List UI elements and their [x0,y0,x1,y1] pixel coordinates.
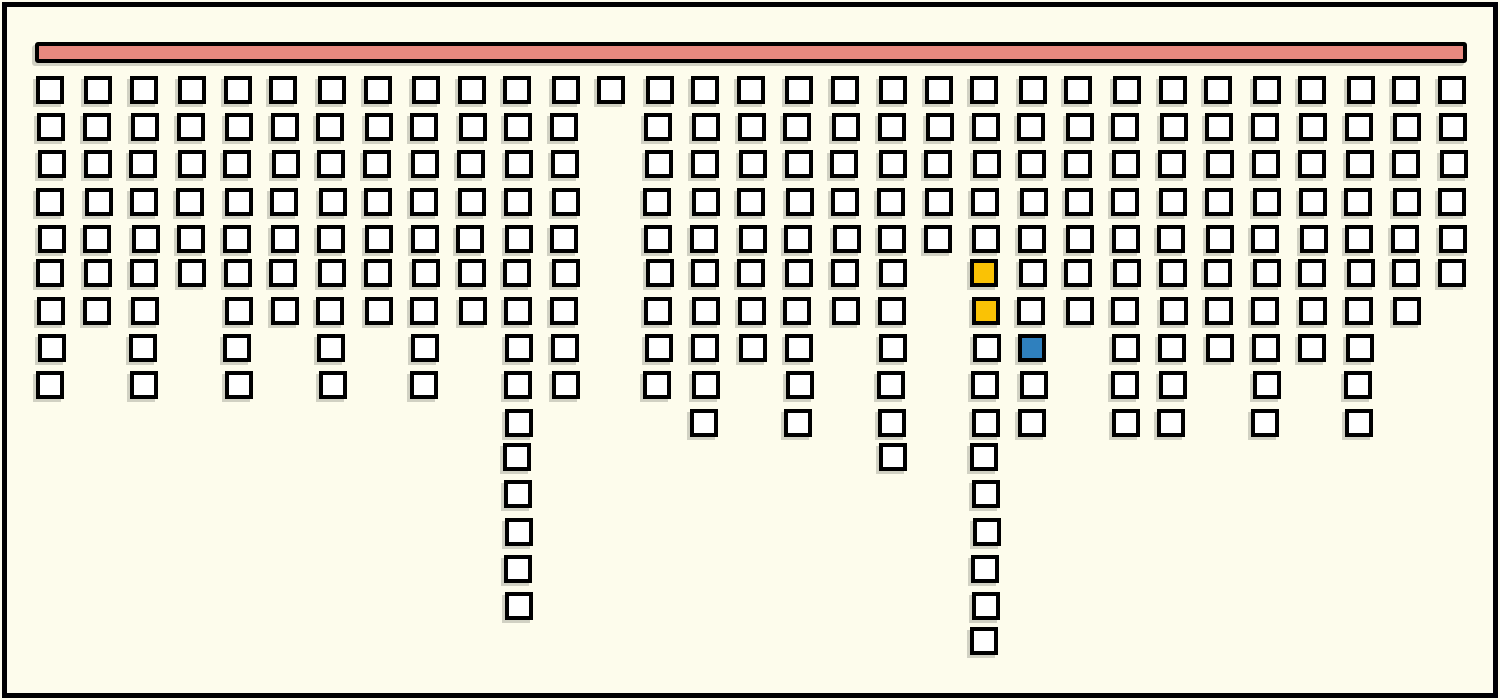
cell-square [1393,188,1421,216]
cell-square [1159,76,1187,104]
cell-square [364,259,392,287]
cell-square [1345,225,1373,253]
cell-square [1111,188,1139,216]
cell-square [971,371,999,399]
cell-square [269,76,297,104]
cell-square [830,150,858,178]
cell-square [973,334,1001,362]
cell-square [178,150,206,178]
cell-square [84,259,112,287]
cell-square [223,334,251,362]
cell-square [785,150,813,178]
cell-square [552,371,580,399]
cell-square [178,76,206,104]
cell-square [176,188,204,216]
cell-square [692,297,720,325]
cell-square [785,334,813,362]
cell-square [504,297,532,325]
cell-square [83,113,111,141]
cell-square [364,76,392,104]
cell-square [271,225,299,253]
cell-square [1206,225,1234,253]
cell-square [879,443,907,471]
cell-square [130,76,158,104]
cell-square [36,188,64,216]
cell-square [319,188,347,216]
cell-square [972,592,1000,620]
cell-square [644,225,672,253]
cell-square [552,76,580,104]
cell-square [1392,150,1420,178]
cell-square [690,225,718,253]
cell-square [783,297,811,325]
cell-square [363,150,391,178]
cell-square [37,113,65,141]
cell-square [1252,150,1280,178]
cell-square [691,76,719,104]
cell-square [645,150,673,178]
cell-square [691,150,719,178]
cell-square [411,334,439,362]
cell-square [1112,409,1140,437]
cell-square [1300,225,1328,253]
cell-square [224,76,252,104]
cell-square [317,150,345,178]
cell-square [691,259,719,287]
cell-square [505,334,533,362]
cell-square [973,150,1001,178]
cell-square [505,225,533,253]
cell-square [1205,113,1233,141]
cell-square [317,225,345,253]
cell-square [1298,76,1326,104]
cell-square [178,259,206,287]
cell-square [1205,188,1233,216]
cell-square [459,297,487,325]
cell-square [36,371,64,399]
cell-square [1066,113,1094,141]
cell-square [646,259,674,287]
cell-square [83,297,111,325]
cell-square [38,225,66,253]
cell-square [223,150,251,178]
cell-square [1112,225,1140,253]
cell-square [597,76,625,104]
cell-square [1298,334,1326,362]
cell-square [504,188,532,216]
cell-square [1439,113,1467,141]
cell-square [1112,150,1140,178]
cell-square [879,334,907,362]
cell-square [1392,259,1420,287]
cell-square [270,188,298,216]
cell-square [550,113,578,141]
cell-square [737,76,765,104]
cell-square-highlighted [970,259,998,287]
cell-square [503,443,531,471]
cell-square [925,76,953,104]
cell-square [1347,259,1375,287]
cell-square [504,480,532,508]
cell-square [551,150,579,178]
cell-square [924,225,952,253]
cell-square [1158,334,1186,362]
cell-square [1020,371,1048,399]
cell-square [692,113,720,141]
cell-square [1020,188,1048,216]
cell-square [551,334,579,362]
cell-square [504,555,532,583]
cell-square [1160,113,1188,141]
cell-square [316,297,344,325]
cell-square [739,334,767,362]
cell-square [1160,297,1188,325]
cell-square [319,371,347,399]
cell-square [831,76,859,104]
cell-square [784,225,812,253]
cell-square [1204,259,1232,287]
cell-square [877,188,905,216]
cell-square [972,409,1000,437]
cell-square [925,188,953,216]
cell-square [1299,188,1327,216]
cell-square [1438,259,1466,287]
cell-square [365,225,393,253]
cell-square [410,113,438,141]
cell-square [131,297,159,325]
cell-square [225,371,253,399]
cell-square [879,150,907,178]
cell-square [1299,113,1327,141]
cell-square-highlighted [1018,334,1046,362]
cell-square [1253,188,1281,216]
cell-square [130,259,158,287]
cell-square [36,76,64,104]
cell-square [38,334,66,362]
cell-square [456,225,484,253]
cell-square [83,225,111,253]
cell-square [317,334,345,362]
cell-square [1113,76,1141,104]
cell-square [1018,225,1046,253]
cell-square [971,188,999,216]
cell-square [879,259,907,287]
cell-square [271,113,299,141]
cell-square [832,113,860,141]
cell-square [552,188,580,216]
cell-square [645,334,673,362]
cell-square [1017,297,1045,325]
cell-square [1204,76,1232,104]
cell-square [972,113,1000,141]
cell-square [833,225,861,253]
cell-square [272,150,300,178]
cell-square [132,225,160,253]
cell-square [1393,113,1421,141]
cell-square [1346,334,1374,362]
top-bar [35,42,1467,63]
cell-square [318,259,346,287]
cell-square [783,113,811,141]
cell-square [410,188,438,216]
cell-square [459,113,487,141]
cell-square [38,150,66,178]
cell-square [1018,409,1046,437]
cell-square [1391,225,1419,253]
cell-square [1066,225,1094,253]
cell-square [84,76,112,104]
cell-square [411,150,439,178]
cell-square [1299,297,1327,325]
cell-square [878,113,906,141]
cell-square [643,371,671,399]
cell-square [550,297,578,325]
cell-square [1064,76,1092,104]
cell-square [1253,76,1281,104]
cell-square [410,297,438,325]
cell-square [271,297,299,325]
cell-square [1438,76,1466,104]
cell-square [1206,334,1234,362]
figure-canvas [0,0,1500,700]
cell-square [690,409,718,437]
cell-square [646,76,674,104]
cell-square [1111,113,1139,141]
cell-square [1018,150,1046,178]
cell-square [1064,150,1092,178]
cell-square [1253,371,1281,399]
cell-square [318,76,346,104]
cell-square [692,371,720,399]
cell-square [1111,297,1139,325]
cell-square [316,113,344,141]
cell-square [129,150,157,178]
cell-square [1113,259,1141,287]
cell-square [1157,409,1185,437]
cell-square [784,409,812,437]
cell-square [1066,297,1094,325]
cell-square [458,76,486,104]
cell-square [130,371,158,399]
cell-square [1392,76,1420,104]
cell-square [970,76,998,104]
cell-square [1438,188,1466,216]
cell-square [1251,297,1279,325]
cell-square [737,188,765,216]
cell-square [878,409,906,437]
cell-square [505,409,533,437]
cell-square [1205,297,1233,325]
cell-square [738,113,766,141]
cell-square [457,150,485,178]
cell-square [737,259,765,287]
cell-square [129,334,157,362]
cell-square [1344,188,1372,216]
cell-square [644,113,672,141]
cell-square [832,297,860,325]
cell-square [269,259,297,287]
cell-square [1017,113,1045,141]
cell-square [1019,259,1047,287]
cell-square [1112,334,1140,362]
cell-square [1251,409,1279,437]
cell-square [412,259,440,287]
cell-square [878,297,906,325]
cell-square [785,259,813,287]
cell-square [738,297,766,325]
cell-square [458,259,486,287]
cell-square [1159,371,1187,399]
cell-square [831,259,859,287]
cell-square [364,188,392,216]
cell-square [177,225,205,253]
cell-square [1393,297,1421,325]
cell-square [1346,150,1374,178]
cell-square [1439,225,1467,253]
cell-square [643,188,671,216]
cell-square [505,592,533,620]
cell-square [130,188,158,216]
cell-square [504,371,532,399]
cell-square [1111,371,1139,399]
cell-square [877,371,905,399]
cell-square [224,259,252,287]
cell-square [970,627,998,655]
cell-square [365,113,393,141]
cell-square [365,297,393,325]
cell-square [1159,259,1187,287]
cell-square [177,113,205,141]
cell-square [550,225,578,253]
cell-square [786,371,814,399]
cell-square [85,188,113,216]
cell-square-highlighted [972,297,1000,325]
cell-square [973,518,1001,546]
cell-square [786,188,814,216]
cell-square [505,150,533,178]
cell-square [831,188,859,216]
cell-square [1159,188,1187,216]
cell-square [692,188,720,216]
cell-square [225,113,253,141]
cell-square [503,259,531,287]
cell-square [504,113,532,141]
cell-square [785,76,813,104]
cell-square [1251,225,1279,253]
cell-square [1344,371,1372,399]
cell-square [1157,225,1185,253]
cell-square [1206,150,1234,178]
cell-square [223,225,251,253]
cell-square [926,113,954,141]
cell-square [84,150,112,178]
cell-square [739,225,767,253]
cell-square [1440,150,1468,178]
cell-square [691,334,719,362]
cell-square [1298,259,1326,287]
cell-square [1252,334,1280,362]
cell-square [972,225,1000,253]
cell-square [37,297,65,325]
cell-square [503,76,531,104]
cell-square [1345,409,1373,437]
cell-square [879,76,907,104]
cell-square [972,480,1000,508]
cell-square [225,188,253,216]
cell-square [924,150,952,178]
cell-square [552,259,580,287]
cell-square [971,555,999,583]
cell-square [739,150,767,178]
cell-square [1158,150,1186,178]
cell-square [644,297,672,325]
cell-square [410,371,438,399]
cell-square [225,297,253,325]
cell-square [1064,259,1092,287]
cell-square [131,113,159,141]
cell-square [505,518,533,546]
cell-square [458,188,486,216]
cell-square [1253,259,1281,287]
cell-square [1251,113,1279,141]
cell-square [1345,297,1373,325]
cell-square [412,76,440,104]
cell-square [1345,113,1373,141]
cell-square [1065,188,1093,216]
cell-square [1347,76,1375,104]
cell-square [878,225,906,253]
cell-square [36,259,64,287]
cell-square [1019,76,1047,104]
cell-square [411,225,439,253]
cell-square [970,443,998,471]
cell-square [1298,150,1326,178]
